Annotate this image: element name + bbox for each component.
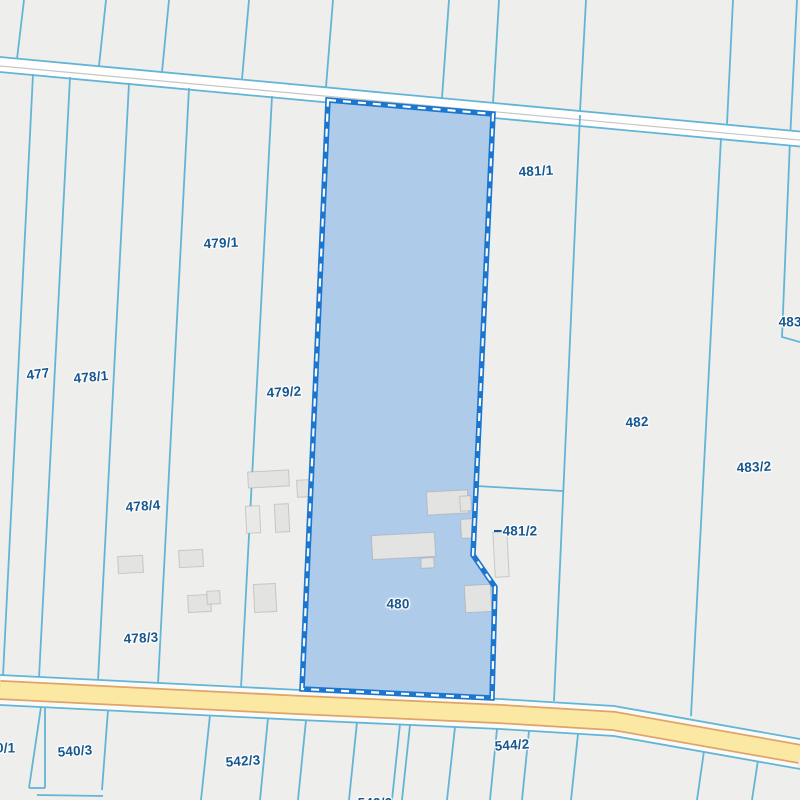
parcel-label-540-3: 540/3 (57, 742, 93, 759)
building (245, 506, 260, 534)
building (253, 583, 276, 612)
building (464, 584, 491, 612)
parcel-label-481-2: 481/2 (503, 524, 538, 539)
building (371, 532, 435, 559)
building (493, 532, 509, 578)
parcel-label-480: 480 (386, 597, 409, 612)
parcel-label-477: 477 (26, 365, 51, 383)
parcel-label-483-1: 483/1 (779, 315, 800, 330)
parcel-label-479-1: 479/1 (203, 235, 239, 252)
parcel-label-544-2: 544/2 (494, 736, 530, 753)
parcel-label-542-3: 542/3 (225, 752, 261, 769)
parcel-label-483-2: 483/2 (736, 459, 772, 476)
building (207, 591, 221, 605)
building (179, 549, 204, 567)
parcel-label-478-4: 478/4 (125, 497, 161, 514)
parcel-label-478-1: 478/1 (73, 368, 109, 386)
map-canvas[interactable] (0, 0, 800, 800)
building (274, 504, 289, 533)
parcel-label-540-1: 540/1 (0, 741, 15, 756)
building (118, 555, 144, 573)
parcel-label-478-3: 478/3 (123, 630, 159, 647)
building (248, 470, 290, 488)
building (421, 558, 435, 569)
parcel-label-542-2: 542/2 (358, 796, 393, 800)
parcel-label-481-1: 481/1 (518, 163, 554, 180)
building (460, 496, 472, 512)
cadastral-map[interactable]: 479/1 481/1 477 478/1 479/2 482 483/1 48… (0, 0, 800, 800)
parcel-label-482: 482 (625, 414, 649, 430)
parcel-label-479-2: 479/2 (266, 384, 302, 401)
